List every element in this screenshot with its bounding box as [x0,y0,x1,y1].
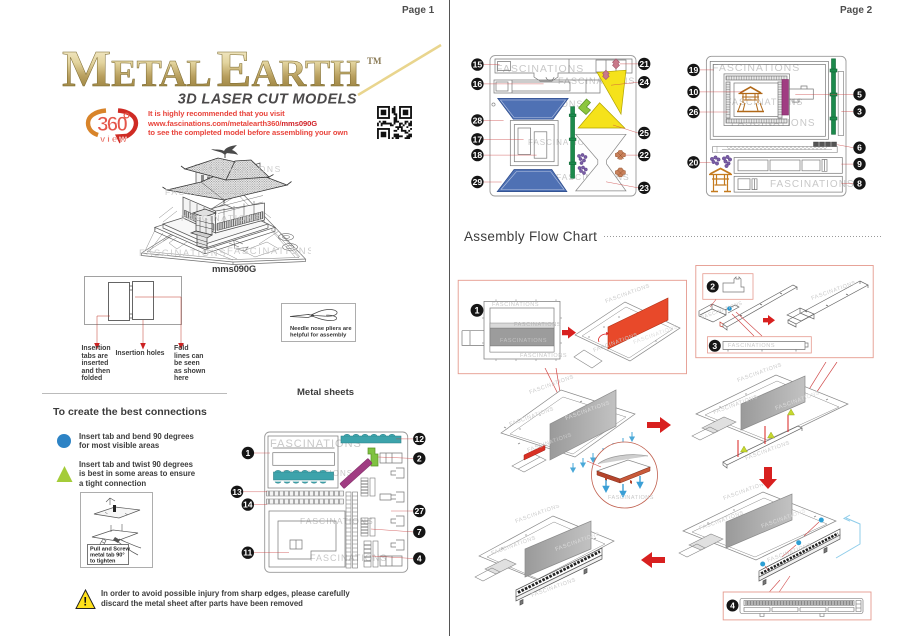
svg-text:view: view [100,134,129,145]
svg-text:8: 8 [857,178,862,188]
svg-text:to tighten: to tighten [90,559,116,565]
svg-text:4: 4 [417,554,422,564]
svg-text:FASCINATIONS: FASCINATIONS [770,179,855,190]
svg-text:23: 23 [639,183,649,193]
svg-text:2: 2 [417,453,422,463]
svg-text:TM: TM [367,56,382,66]
svg-text:3D LASER CUT MODELS: 3D LASER CUT MODELS [178,92,357,108]
svg-text:FASCINATIONS: FASCINATIONS [492,302,539,308]
svg-text:1: 1 [474,306,479,316]
svg-text:28: 28 [473,115,483,125]
svg-text:22: 22 [639,150,649,160]
svg-text:FASCINATIONS: FASCINATIONS [712,62,800,74]
svg-text:25: 25 [639,128,649,138]
svg-text:13: 13 [232,487,242,497]
svg-text:FASCINATIONS: FASCINATIONS [608,495,654,501]
svg-text:7: 7 [417,527,422,537]
svg-text:FASCINATIONS: FASCINATIONS [500,338,547,344]
svg-text:3: 3 [857,106,862,116]
svg-text:FASCINATIONS: FASCINATIONS [227,246,311,257]
svg-text:18: 18 [473,150,483,160]
svg-text:20: 20 [689,157,699,167]
svg-text:FASCINATIONS: FASCINATIONS [520,353,567,359]
svg-text:FASCINATIONS: FASCINATIONS [139,248,227,259]
svg-text:10: 10 [689,87,699,97]
svg-text:26: 26 [689,107,699,117]
svg-text:27: 27 [415,506,425,516]
svg-text:FASCINATIONS: FASCINATIONS [181,213,262,223]
svg-text:9: 9 [857,159,862,169]
svg-text:FASCINATIONS: FASCINATIONS [726,97,803,107]
svg-text:helpful for assembly: helpful for assembly [290,333,347,339]
svg-text:FASCINATIONS: FASCINATIONS [165,187,246,197]
svg-text:29: 29 [473,177,483,187]
svg-text:19: 19 [689,65,699,75]
svg-text:2: 2 [710,282,715,292]
svg-text:FASCINATIONS: FASCINATIONS [514,322,561,328]
svg-text:15: 15 [473,60,483,70]
svg-text:FASCINATIONS: FASCINATIONS [728,343,775,349]
svg-text:6: 6 [857,143,862,153]
svg-text:3: 3 [712,341,717,351]
svg-text:16: 16 [473,79,483,89]
svg-text:4: 4 [730,601,735,611]
svg-text:21: 21 [639,59,649,69]
svg-text:Needle nose pliers are: Needle nose pliers are [290,326,352,332]
svg-text:17: 17 [473,134,483,144]
svg-text:!: ! [83,595,87,609]
svg-text:FASCINATIONS: FASCINATIONS [201,164,282,174]
svg-text:11: 11 [243,548,252,558]
svg-text:METAL EARTH: METAL EARTH [62,41,360,98]
svg-text:24: 24 [639,77,649,87]
svg-text:FASCINATIONS: FASCINATIONS [310,553,387,563]
svg-text:14: 14 [243,500,253,510]
svg-text:360: 360 [97,113,127,136]
svg-text:12: 12 [415,434,425,444]
svg-text:5: 5 [857,89,862,99]
svg-text:1: 1 [246,448,251,458]
